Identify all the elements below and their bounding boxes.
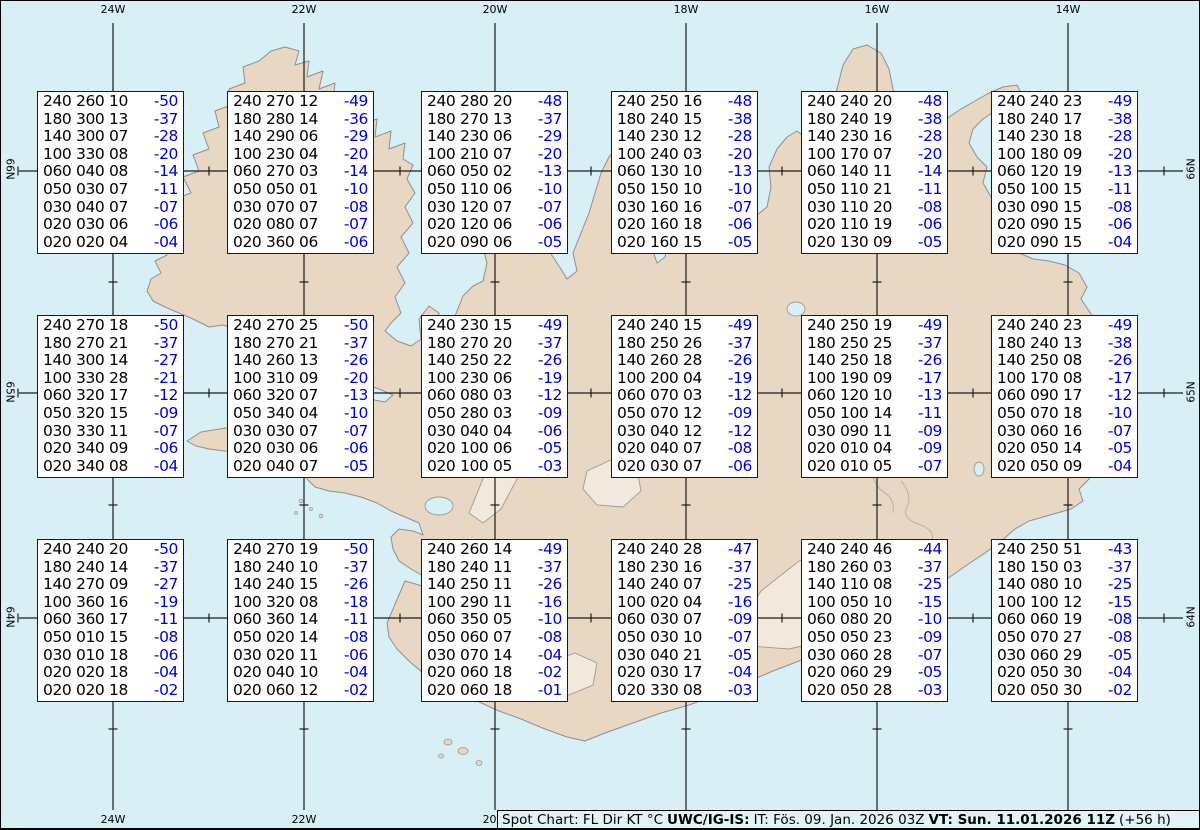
fl-value: 140	[617, 352, 650, 370]
spot-row: 02005028-03	[807, 682, 942, 700]
spot-row: 02003006-06	[233, 440, 368, 458]
dir-value: 270	[76, 335, 109, 353]
spot-row: 10002004-16	[617, 594, 752, 612]
temp-value: -49	[324, 93, 368, 111]
temp-value: -20	[324, 146, 368, 164]
kt-value: 26	[683, 335, 708, 353]
spot-row: 02001005-07	[807, 458, 942, 476]
temp-value: -26	[708, 352, 752, 370]
spot-row: 10033028-21	[43, 370, 178, 388]
spot-row: 02036006-06	[233, 234, 368, 252]
temp-value: -08	[134, 629, 178, 647]
spot-row: 18024014-37	[43, 559, 178, 577]
spot-row: 02006029-05	[807, 664, 942, 682]
kt-value: 12	[683, 405, 708, 423]
fl-value: 020	[617, 440, 650, 458]
kt-value: 18	[493, 664, 518, 682]
dir-value: 050	[266, 181, 299, 199]
kt-value: 03	[493, 405, 518, 423]
dir-value: 320	[76, 387, 109, 405]
temp-value: -06	[134, 440, 178, 458]
latitude-label-left: 66N	[2, 156, 18, 182]
spot-row: 10032008-18	[233, 594, 368, 612]
dir-value: 240	[1030, 93, 1063, 111]
kt-value: 18	[1063, 405, 1088, 423]
spot-row: 05001015-08	[43, 629, 178, 647]
dir-value: 040	[460, 423, 493, 441]
kt-value: 05	[493, 458, 518, 476]
spot-row: 02003006-06	[43, 216, 178, 234]
kt-value: 11	[299, 647, 324, 665]
temp-value: -48	[518, 93, 562, 111]
kt-value: 18	[109, 647, 134, 665]
fl-value: 050	[807, 181, 840, 199]
temp-value: -37	[708, 335, 752, 353]
spot-row: 02006018-01	[427, 682, 562, 700]
meridian-label-bottom: 24W	[101, 813, 126, 826]
kt-value: 09	[1063, 458, 1088, 476]
dir-value: 260	[76, 93, 109, 111]
temp-value: -49	[518, 317, 562, 335]
temp-value: -38	[1088, 111, 1132, 129]
dir-value: 320	[76, 405, 109, 423]
fl-value: 030	[807, 647, 840, 665]
spot-row: 03006029-05	[997, 647, 1132, 665]
spot-row: 18025026-37	[617, 335, 752, 353]
temp-value: -15	[1088, 594, 1132, 612]
kt-value: 09	[873, 234, 898, 252]
fl-value: 020	[617, 664, 650, 682]
kt-value: 13	[1063, 335, 1088, 353]
fl-value: 140	[43, 576, 76, 594]
temp-value: -10	[518, 611, 562, 629]
spot-box: 24027019-5018024010-3714024015-261003200…	[227, 539, 374, 702]
temp-value: -13	[518, 163, 562, 181]
dir-value: 270	[266, 335, 299, 353]
kt-value: 12	[683, 423, 708, 441]
kt-value: 10	[873, 387, 898, 405]
fl-value: 020	[617, 216, 650, 234]
temp-value: -05	[518, 234, 562, 252]
temp-value: -28	[898, 128, 942, 146]
temp-value: -13	[898, 387, 942, 405]
fl-value: 240	[997, 541, 1030, 559]
meridian-label-top: 16W	[865, 3, 890, 16]
fl-value: 050	[43, 181, 76, 199]
kt-value: 20	[493, 335, 518, 353]
temp-value: -08	[1088, 199, 1132, 217]
spot-row: 02008007-07	[233, 216, 368, 234]
dir-value: 080	[266, 216, 299, 234]
fl-value: 060	[43, 387, 76, 405]
spot-row: 18024015-38	[617, 111, 752, 129]
temp-value: -04	[1088, 234, 1132, 252]
dir-value: 340	[266, 405, 299, 423]
kt-value: 14	[1063, 440, 1088, 458]
fl-value: 060	[997, 163, 1030, 181]
kt-value: 08	[299, 594, 324, 612]
fl-value: 020	[617, 682, 650, 700]
spot-row: 02002004-04	[43, 234, 178, 252]
kt-value: 06	[493, 234, 518, 252]
dir-value: 060	[460, 664, 493, 682]
temp-value: -04	[708, 664, 752, 682]
spot-row: 05007018-10	[997, 405, 1132, 423]
kt-value: 23	[1063, 317, 1088, 335]
fl-value: 060	[233, 163, 266, 181]
temp-value: -49	[1088, 317, 1132, 335]
kt-value: 17	[1063, 111, 1088, 129]
status-bar: Spot Chart: FL Dir KT °C UWC/IG-IS: IT: …	[497, 810, 1199, 828]
kt-value: 07	[683, 611, 708, 629]
temp-value: -18	[324, 594, 368, 612]
spot-row: 05006007-08	[427, 629, 562, 647]
spot-row: 05007027-08	[997, 629, 1132, 647]
temp-value: -49	[518, 541, 562, 559]
kt-value: 07	[873, 146, 898, 164]
dir-value: 040	[650, 423, 683, 441]
kt-value: 04	[109, 234, 134, 252]
temp-value: -20	[518, 146, 562, 164]
fl-value: 060	[997, 387, 1030, 405]
meridian-label-top: 20W	[483, 3, 508, 16]
temp-value: -37	[324, 559, 368, 577]
fl-value: 020	[233, 682, 266, 700]
dir-value: 250	[840, 335, 873, 353]
dir-value: 230	[266, 146, 299, 164]
temp-value: -48	[898, 93, 942, 111]
kt-value: 13	[109, 111, 134, 129]
fl-value: 180	[617, 111, 650, 129]
fl-value: 100	[617, 594, 650, 612]
spot-row: 24026010-50	[43, 93, 178, 111]
fl-value: 180	[997, 111, 1030, 129]
fl-value: 020	[43, 458, 76, 476]
temp-value: -20	[324, 370, 368, 388]
dir-value: 230	[840, 128, 873, 146]
dir-value: 240	[76, 541, 109, 559]
dir-value: 060	[840, 647, 873, 665]
fl-value: 030	[427, 423, 460, 441]
fl-value: 140	[997, 576, 1030, 594]
temp-value: -10	[898, 611, 942, 629]
kt-value: 06	[299, 234, 324, 252]
kt-value: 06	[493, 128, 518, 146]
meridian-label-top: 24W	[101, 3, 126, 16]
temp-value: -11	[324, 611, 368, 629]
temp-value: -08	[518, 629, 562, 647]
kt-value: 13	[299, 352, 324, 370]
latitude-label-right: 64N	[1184, 604, 1200, 630]
temp-value: -20	[134, 146, 178, 164]
temp-value: -03	[898, 682, 942, 700]
fl-value: 050	[43, 629, 76, 647]
fl-value: 180	[807, 559, 840, 577]
dir-value: 110	[840, 199, 873, 217]
fl-value: 030	[617, 199, 650, 217]
spot-row: 03007007-08	[233, 199, 368, 217]
fl-value: 050	[617, 405, 650, 423]
dir-value: 030	[650, 629, 683, 647]
temp-value: -19	[708, 370, 752, 388]
temp-value: -05	[518, 440, 562, 458]
dir-value: 120	[460, 199, 493, 217]
dir-value: 240	[840, 93, 873, 111]
kt-value: 03	[683, 387, 708, 405]
temp-value: -10	[324, 181, 368, 199]
dir-value: 310	[266, 370, 299, 388]
kt-value: 15	[1063, 181, 1088, 199]
spot-box: 24025051-4318015003-3714008010-251001001…	[991, 539, 1138, 702]
spot-row: 06007003-12	[617, 387, 752, 405]
temp-value: -02	[518, 664, 562, 682]
spot-row: 06006019-08	[997, 611, 1132, 629]
temp-value: -04	[134, 458, 178, 476]
spot-box: 24024028-4718023016-3714024007-251000200…	[611, 539, 758, 702]
meridian-label-top: 18W	[674, 3, 699, 16]
temp-value: -19	[518, 370, 562, 388]
kt-value: 19	[299, 541, 324, 559]
spot-row: 02013009-05	[807, 234, 942, 252]
dir-value: 240	[650, 111, 683, 129]
spot-row: 14011008-25	[807, 576, 942, 594]
kt-value: 07	[109, 181, 134, 199]
spot-box: 24027012-4918028014-3614029006-291002300…	[227, 91, 374, 254]
dir-value: 300	[76, 352, 109, 370]
lake-thingvallavatn	[425, 497, 453, 515]
fl-value: 100	[43, 594, 76, 612]
kt-value: 20	[109, 541, 134, 559]
dir-value: 070	[650, 387, 683, 405]
dir-value: 270	[266, 317, 299, 335]
spot-row: 18015003-37	[997, 559, 1132, 577]
fl-value: 100	[233, 594, 266, 612]
kt-value: 06	[493, 440, 518, 458]
kt-value: 20	[873, 199, 898, 217]
spot-row: 03011020-08	[807, 199, 942, 217]
dir-value: 280	[460, 93, 493, 111]
fl-value: 020	[997, 440, 1030, 458]
spot-box: 24024020-4818024019-3814023016-281001700…	[801, 91, 948, 254]
fl-value: 240	[427, 541, 460, 559]
dir-value: 060	[266, 682, 299, 700]
kt-value: 10	[683, 163, 708, 181]
spot-row: 03009015-08	[997, 199, 1132, 217]
temp-value: -06	[1088, 216, 1132, 234]
spot-row: 10005010-15	[807, 594, 942, 612]
fl-value: 030	[997, 199, 1030, 217]
spot-row: 10023006-19	[427, 370, 562, 388]
kt-value: 06	[493, 370, 518, 388]
temp-value: -15	[898, 594, 942, 612]
spot-row: 06012019-13	[997, 163, 1132, 181]
temp-value: -04	[324, 664, 368, 682]
dir-value: 230	[650, 128, 683, 146]
kt-value: 14	[109, 352, 134, 370]
dir-value: 250	[840, 317, 873, 335]
kt-value: 15	[109, 405, 134, 423]
spot-box: 24024015-4918025026-3714026028-261002000…	[611, 315, 758, 478]
spot-row: 24025019-49	[807, 317, 942, 335]
temp-value: -12	[518, 387, 562, 405]
fl-value: 240	[43, 541, 76, 559]
temp-value: -09	[518, 405, 562, 423]
temp-value: -48	[708, 93, 752, 111]
kt-value: 12	[1063, 594, 1088, 612]
kt-value: 11	[109, 423, 134, 441]
kt-value: 11	[873, 163, 898, 181]
spot-row: 18024011-37	[427, 559, 562, 577]
issue-time: IT: Fös. 09. Jan. 2026 03Z	[754, 812, 925, 828]
dir-value: 060	[1030, 647, 1063, 665]
dir-value: 150	[1030, 559, 1063, 577]
spot-row: 06035005-10	[427, 611, 562, 629]
spot-row: 24024028-47	[617, 541, 752, 559]
spot-row: 24024015-49	[617, 317, 752, 335]
fl-value: 180	[427, 559, 460, 577]
fl-value: 240	[427, 317, 460, 335]
spot-row: 06012010-13	[807, 387, 942, 405]
fl-value: 060	[807, 611, 840, 629]
temp-value: -06	[708, 216, 752, 234]
fl-value: 020	[807, 682, 840, 700]
spot-row: 05010015-11	[997, 181, 1132, 199]
spot-row: 24024046-44	[807, 541, 942, 559]
fl-value: 060	[427, 611, 460, 629]
kt-value: 07	[299, 199, 324, 217]
fl-value: 020	[233, 458, 266, 476]
fl-value: 100	[997, 594, 1030, 612]
spot-row: 02009006-05	[427, 234, 562, 252]
temp-value: -06	[898, 216, 942, 234]
temp-value: -06	[134, 216, 178, 234]
kt-value: 09	[1063, 146, 1088, 164]
temp-value: -16	[518, 594, 562, 612]
fl-value: 100	[997, 370, 1030, 388]
spot-chart-canvas: 24W 22W 20W 18W 16W 14W 24W 22W 20W 66N …	[0, 0, 1200, 830]
kt-value: 28	[873, 647, 898, 665]
kt-value: 18	[1063, 128, 1088, 146]
temp-value: -38	[708, 111, 752, 129]
dir-value: 040	[76, 199, 109, 217]
temp-value: -27	[134, 352, 178, 370]
spot-row: 05034004-10	[233, 405, 368, 423]
temp-value: -28	[134, 128, 178, 146]
spot-row: 14026028-26	[617, 352, 752, 370]
fl-value: 240	[233, 317, 266, 335]
fl-value: 030	[43, 423, 76, 441]
fl-value: 050	[233, 405, 266, 423]
temp-value: -06	[134, 647, 178, 665]
spot-row: 06003007-09	[617, 611, 752, 629]
spot-row: 10010012-15	[997, 594, 1132, 612]
kt-value: 12	[299, 682, 324, 700]
dir-value: 110	[840, 181, 873, 199]
spot-row: 10033008-20	[43, 146, 178, 164]
spot-row: 06013010-13	[617, 163, 752, 181]
dir-value: 360	[266, 234, 299, 252]
dir-value: 100	[460, 440, 493, 458]
spot-row: 24027018-50	[43, 317, 178, 335]
spot-row: 14023016-28	[807, 128, 942, 146]
spot-row: 02005014-05	[997, 440, 1132, 458]
spot-row: 10031009-20	[233, 370, 368, 388]
spot-row: 14023006-29	[427, 128, 562, 146]
kt-value: 13	[493, 111, 518, 129]
dir-value: 070	[266, 199, 299, 217]
spot-box: 24024023-4918024013-3814025008-261001700…	[991, 315, 1138, 478]
dir-value: 270	[460, 111, 493, 129]
dir-value: 090	[1030, 199, 1063, 217]
fl-value: 050	[807, 405, 840, 423]
temp-value: -14	[134, 163, 178, 181]
kt-value: 08	[1063, 370, 1088, 388]
dir-value: 100	[460, 458, 493, 476]
temp-value: -37	[898, 335, 942, 353]
fl-value: 030	[427, 647, 460, 665]
dir-value: 070	[460, 647, 493, 665]
dir-value: 120	[840, 387, 873, 405]
kt-value: 19	[1063, 163, 1088, 181]
temp-value: -09	[898, 629, 942, 647]
fl-value: 100	[43, 370, 76, 388]
fl-value: 050	[617, 181, 650, 199]
kt-value: 06	[299, 440, 324, 458]
temp-value: -37	[708, 559, 752, 577]
fl-value: 240	[427, 93, 460, 111]
spot-row: 14008010-25	[997, 576, 1132, 594]
fl-value: 030	[233, 647, 266, 665]
fl-value: 180	[43, 111, 76, 129]
vestmannaeyjar-islands	[439, 739, 483, 766]
kt-value: 08	[109, 458, 134, 476]
fl-value: 100	[233, 370, 266, 388]
fl-value: 180	[997, 559, 1030, 577]
spot-row: 06009017-12	[997, 387, 1132, 405]
fl-value: 020	[427, 440, 460, 458]
spot-row: 24024023-49	[997, 93, 1132, 111]
fl-value: 020	[233, 664, 266, 682]
dir-value: 170	[1030, 370, 1063, 388]
temp-value: -05	[898, 664, 942, 682]
kt-value: 20	[873, 93, 898, 111]
fl-value: 240	[43, 317, 76, 335]
dir-value: 240	[266, 559, 299, 577]
spot-row: 05028003-09	[427, 405, 562, 423]
spot-row: 06004008-14	[43, 163, 178, 181]
dir-value: 260	[460, 541, 493, 559]
kt-value: 15	[1063, 234, 1088, 252]
dir-value: 040	[266, 664, 299, 682]
kt-value: 18	[109, 317, 134, 335]
lake-myvatn	[787, 302, 805, 316]
temp-value: -12	[708, 423, 752, 441]
kt-value: 28	[683, 541, 708, 559]
kt-value: 19	[873, 111, 898, 129]
kt-value: 18	[873, 352, 898, 370]
fl-value: 020	[427, 234, 460, 252]
dir-value: 330	[76, 370, 109, 388]
fl-value: 240	[617, 93, 650, 111]
dir-value: 030	[266, 423, 299, 441]
spot-row: 14027009-27	[43, 576, 178, 594]
spot-row: 03006016-07	[997, 423, 1132, 441]
kt-value: 19	[873, 317, 898, 335]
spot-row: 24027025-50	[233, 317, 368, 335]
fl-value: 020	[807, 458, 840, 476]
dir-value: 100	[1030, 181, 1063, 199]
kt-value: 29	[873, 664, 898, 682]
